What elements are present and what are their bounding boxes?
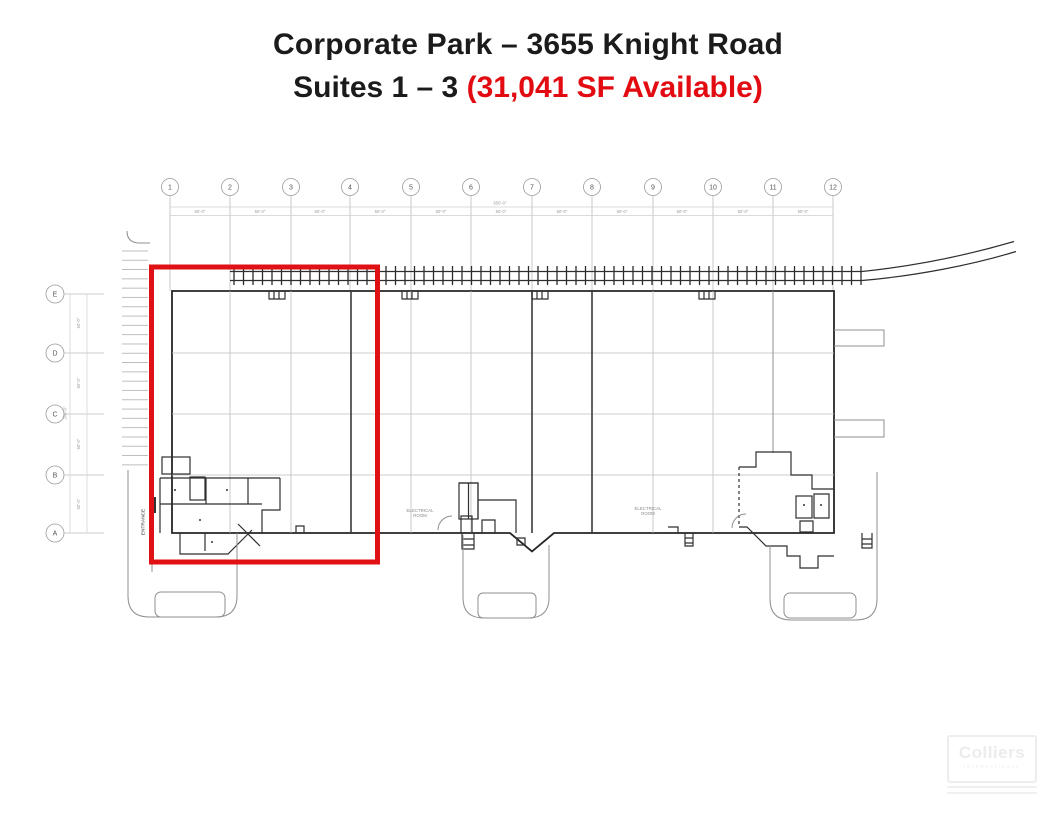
grid-row-label: C bbox=[52, 412, 57, 419]
grid-col-label: 10 bbox=[709, 185, 717, 192]
demising-walls bbox=[351, 291, 592, 533]
grid-col-label: 6 bbox=[469, 185, 473, 192]
office-middle: ELECTRICAL ROOM bbox=[406, 483, 516, 533]
bay-dimension: 50'-0" bbox=[677, 209, 688, 214]
grid-col-label: 2 bbox=[228, 185, 232, 192]
parking-stalls bbox=[784, 593, 856, 618]
row-grid: E D C B A 60'-0" 60'-0" 60'-0" 60'-0" 24… bbox=[46, 285, 104, 542]
grid-col-label: 11 bbox=[769, 185, 776, 192]
dock-door-marks bbox=[269, 291, 715, 299]
room-label: ROOM bbox=[413, 513, 427, 518]
grid-col-label: 12 bbox=[829, 185, 837, 192]
flyer-page: Corporate Park – 3655 Knight Road Suites… bbox=[0, 0, 1056, 816]
rail-curve bbox=[862, 242, 1016, 281]
row-dimension: 60'-0" bbox=[76, 498, 81, 509]
row-dimension: 60'-0" bbox=[76, 438, 81, 449]
grid-col-label: 8 bbox=[590, 185, 594, 192]
colliers-sub-text: INTERNATIONAL bbox=[949, 764, 1035, 769]
bay-dimension: 50'-0" bbox=[436, 209, 447, 214]
grid-col-label: 4 bbox=[348, 185, 352, 192]
bay-dimension: 50'-0" bbox=[496, 209, 507, 214]
bay-dimension: 50'-0" bbox=[738, 209, 749, 214]
bay-dimension: 50'-0" bbox=[617, 209, 628, 214]
parking-stalls bbox=[478, 593, 536, 618]
bay-dimension: 50'-0" bbox=[798, 209, 809, 214]
bay-dimension: 50'-0" bbox=[315, 209, 326, 214]
building-outline bbox=[172, 291, 834, 552]
row-dimension: 60'-0" bbox=[76, 377, 81, 388]
rail-spur bbox=[230, 242, 1016, 286]
floor-plan-drawing: 1 2 3 4 5 6 7 8 9 10 11 12 650'-0" 50'-0… bbox=[0, 0, 1056, 816]
office-left bbox=[160, 457, 280, 554]
grid-row-label: D bbox=[52, 351, 57, 358]
grid-col-label: 1 bbox=[168, 185, 172, 192]
bay-dimension: 50'-0" bbox=[195, 209, 206, 214]
colliers-logo-bar bbox=[947, 792, 1037, 796]
colliers-logo: Colliers INTERNATIONAL bbox=[947, 735, 1037, 783]
bay-dimension: 50'-0" bbox=[375, 209, 386, 214]
grid-col-label: 3 bbox=[289, 185, 293, 192]
west-street-stalls bbox=[122, 231, 150, 470]
row-dimension: 60'-0" bbox=[76, 317, 81, 328]
grid-col-label: 5 bbox=[409, 185, 413, 192]
overall-dimension-top: 650'-0" bbox=[494, 201, 508, 206]
left-dimension-lines bbox=[70, 294, 87, 533]
overall-dimension-left: 240'-0" bbox=[63, 406, 68, 420]
right-side-tabs bbox=[834, 330, 884, 437]
entrance-label: ENTRANCE bbox=[141, 509, 147, 535]
grid-col-label: 9 bbox=[651, 185, 655, 192]
grid-row-label: B bbox=[53, 473, 58, 480]
building: ENTRANCE bbox=[141, 291, 885, 552]
grid-row-label: A bbox=[53, 531, 58, 538]
colliers-brand-text: Colliers bbox=[949, 743, 1035, 763]
grid-col-label: 7 bbox=[530, 185, 534, 192]
availability-highlight-box bbox=[152, 267, 378, 562]
entrance-drive-left bbox=[128, 470, 237, 617]
office-right: ELECTRICAL ROOM bbox=[634, 452, 834, 568]
room-label: ROOM bbox=[641, 511, 655, 516]
bay-dimension: 50'-0" bbox=[557, 209, 568, 214]
colliers-logo-bar bbox=[947, 786, 1037, 790]
grid-row-label: E bbox=[53, 292, 58, 299]
parking-stalls bbox=[155, 592, 225, 617]
bay-dimension: 50'-0" bbox=[255, 209, 266, 214]
